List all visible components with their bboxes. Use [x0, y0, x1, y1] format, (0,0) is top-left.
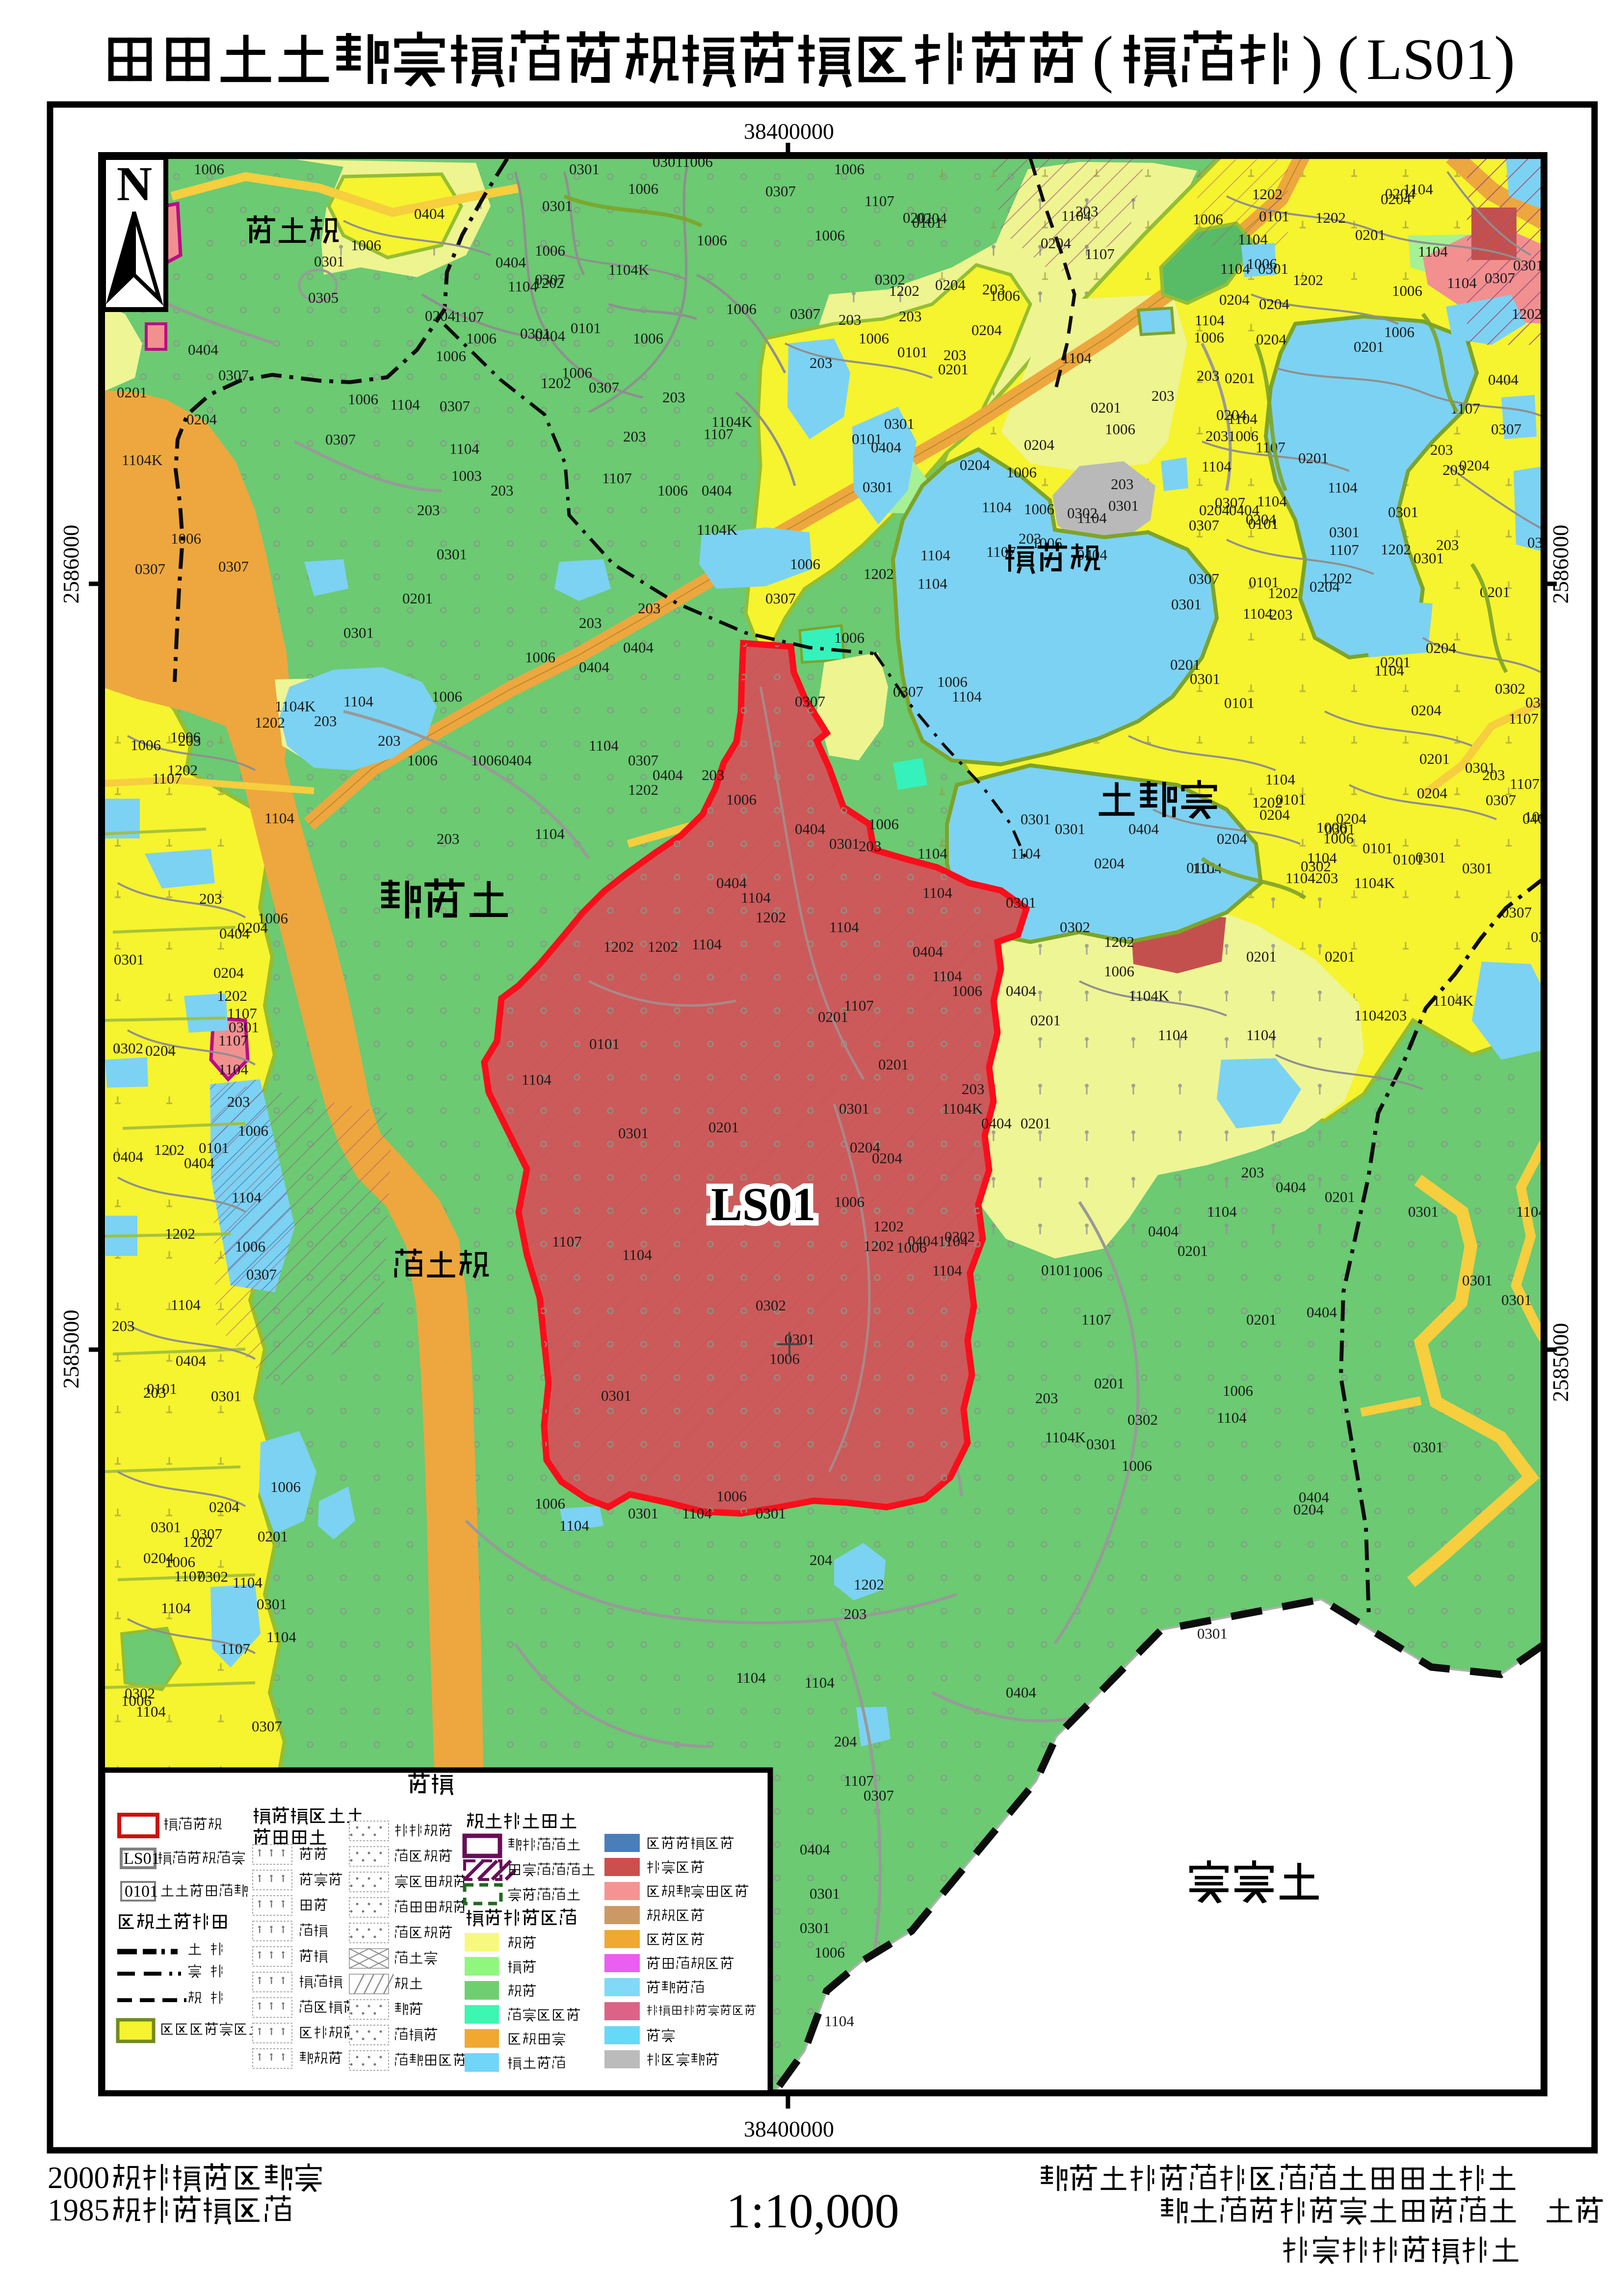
svg-text:0204: 0204	[425, 307, 456, 324]
svg-text:1006: 1006	[834, 160, 864, 178]
svg-text:1006: 1006	[814, 1944, 845, 1961]
svg-text:38400000: 38400000	[744, 119, 834, 144]
svg-text:1107: 1107	[218, 1032, 248, 1049]
svg-text:1107: 1107	[1329, 541, 1359, 558]
svg-text:): )	[1494, 24, 1515, 94]
svg-text:1006: 1006	[726, 300, 757, 317]
svg-text:0204: 0204	[237, 919, 268, 936]
svg-text:1104: 1104	[952, 688, 982, 705]
svg-text:1985: 1985	[48, 2193, 109, 2227]
svg-text:2585000: 2585000	[58, 1310, 83, 1389]
svg-text:1104: 1104	[1257, 493, 1287, 510]
svg-text:203: 203	[810, 354, 833, 371]
svg-text:0404: 0404	[623, 639, 654, 656]
svg-text:0404: 0404	[1229, 501, 1260, 519]
svg-text:1107: 1107	[152, 770, 182, 787]
svg-text:1006: 1006	[868, 815, 899, 833]
svg-text:1104: 1104	[1307, 849, 1337, 866]
svg-text:0404: 0404	[795, 820, 826, 837]
svg-text:0204: 0204	[1219, 291, 1250, 308]
svg-text:0101: 0101	[897, 343, 928, 361]
svg-text:1006: 1006	[952, 982, 982, 999]
svg-text:0404: 0404	[913, 943, 943, 960]
svg-text:0201: 0201	[1380, 653, 1411, 671]
svg-text:10060404: 10060404	[471, 752, 532, 769]
svg-text:1104: 1104	[622, 1246, 652, 1263]
svg-text:1104: 1104	[917, 575, 947, 592]
svg-text:0201: 0201	[402, 590, 433, 607]
svg-text:0301: 0301	[343, 624, 374, 641]
svg-text:0301: 0301	[800, 1919, 830, 1936]
svg-text:0307: 0307	[218, 366, 249, 384]
svg-text:0301: 0301	[1413, 1438, 1443, 1456]
svg-text:0302: 0302	[1495, 680, 1525, 697]
svg-text:1006: 1006	[535, 1495, 565, 1512]
svg-text:0301: 0301	[1462, 1272, 1492, 1289]
svg-text:1104: 1104	[1246, 1026, 1276, 1044]
svg-text:0204: 0204	[1259, 806, 1290, 823]
svg-text:204: 204	[810, 1551, 833, 1568]
svg-text:1104: 1104	[741, 889, 771, 906]
svg-text:203: 203	[417, 501, 440, 519]
svg-text:0204: 0204	[186, 411, 217, 428]
svg-text:1006: 1006	[790, 555, 820, 573]
svg-text:203: 203	[623, 428, 646, 445]
svg-text:0301: 0301	[618, 1124, 649, 1142]
svg-text:0307: 0307	[864, 1787, 894, 1804]
svg-text:0302: 0302	[113, 1040, 143, 1057]
svg-text:1202: 1202	[1315, 209, 1346, 226]
svg-text:1006: 1006	[535, 242, 565, 259]
svg-text:1104: 1104	[920, 547, 950, 564]
svg-text:1104K: 1104K	[1516, 1203, 1557, 1220]
svg-text:1202: 1202	[1512, 305, 1542, 322]
svg-text:1202: 1202	[864, 565, 894, 582]
svg-text:0301: 0301	[437, 546, 467, 563]
svg-text:1202: 1202	[628, 781, 658, 798]
svg-text:0204: 0204	[1259, 295, 1290, 313]
svg-text:1104: 1104	[1328, 479, 1358, 496]
svg-text:0307: 0307	[893, 683, 923, 700]
svg-text:0301: 0301	[1501, 1291, 1532, 1308]
svg-text:203: 203	[662, 389, 685, 406]
svg-text:1202: 1202	[541, 374, 571, 391]
svg-text:1104K: 1104K	[275, 698, 316, 715]
svg-text:0204: 0204	[213, 964, 244, 981]
svg-text:1104: 1104	[1158, 1026, 1188, 1044]
svg-text:203: 203	[1152, 387, 1175, 404]
svg-text:1202: 1202	[1104, 933, 1134, 950]
svg-text:0201: 0201	[1298, 449, 1329, 467]
svg-text:1202: 1202	[1293, 271, 1323, 288]
svg-text:0201: 0201	[1246, 948, 1277, 965]
svg-text:1104K: 1104K	[122, 451, 163, 469]
svg-text:0301: 0301	[756, 1505, 786, 1522]
svg-text:2586000: 2586000	[1548, 525, 1573, 604]
svg-text:1006: 1006	[716, 1487, 747, 1505]
svg-text:0301: 0301	[829, 835, 860, 852]
svg-text:0201: 0201	[903, 209, 933, 226]
svg-text:0302: 0302	[1067, 504, 1098, 522]
svg-text:0201: 0201	[1355, 226, 1386, 243]
svg-text:0301: 0301	[1513, 257, 1544, 274]
svg-text:1006: 1006	[1194, 329, 1224, 346]
svg-text:1006: 1006	[1223, 1382, 1253, 1399]
svg-text:0204: 0204	[1293, 1501, 1324, 1518]
svg-text:0301: 0301	[628, 1505, 658, 1522]
svg-text:1006: 1006	[1105, 420, 1135, 438]
svg-text:203: 203	[1035, 1389, 1058, 1407]
svg-text:0302: 0302	[1060, 918, 1090, 936]
svg-text:0204: 0204	[1426, 639, 1457, 656]
svg-text:1104K: 1104K	[697, 521, 738, 538]
svg-text:0301: 0301	[839, 1100, 869, 1117]
svg-text:0204: 0204	[145, 1042, 176, 1059]
svg-text:0204: 0204	[209, 1498, 240, 1515]
svg-text:203: 203	[1270, 606, 1293, 623]
svg-text:0305: 0305	[308, 289, 339, 306]
svg-text:0404: 0404	[1276, 1178, 1307, 1196]
svg-text:0201: 0201	[818, 1008, 848, 1025]
svg-text:1006: 1006	[769, 1350, 800, 1367]
svg-text:0404: 0404	[1128, 820, 1159, 837]
svg-text:0404: 0404	[188, 341, 219, 358]
svg-text:1006: 1006	[1392, 282, 1422, 299]
svg-text:0204: 0204	[1216, 406, 1247, 423]
svg-text:0301: 0301	[810, 1885, 840, 1902]
svg-text:0307: 0307	[795, 693, 825, 710]
svg-text:1006: 1006	[1122, 1457, 1152, 1474]
svg-text:1202: 1202	[1252, 185, 1283, 203]
svg-text:1006: 1006	[238, 1122, 268, 1139]
svg-text:1104: 1104	[932, 1262, 962, 1279]
svg-text:1202: 1202	[217, 987, 247, 1004]
svg-text:1104: 1104	[161, 1599, 191, 1617]
svg-text:0301: 0301	[1055, 820, 1085, 837]
svg-text:1006: 1006	[348, 391, 378, 408]
svg-text:0101: 0101	[125, 1882, 158, 1901]
svg-text:1104: 1104	[805, 1674, 835, 1691]
svg-text:0301: 0301	[1171, 596, 1202, 613]
svg-text:203: 203	[491, 482, 514, 499]
svg-text:N: N	[117, 157, 152, 211]
svg-text:1104: 1104	[1011, 845, 1041, 862]
svg-text:1104K: 1104K	[1128, 987, 1170, 1004]
svg-text:2000: 2000	[48, 2161, 109, 2195]
svg-text:0201: 0201	[1091, 399, 1121, 416]
svg-text:0307: 0307	[790, 305, 820, 322]
svg-text:1104: 1104	[266, 1628, 296, 1645]
svg-text:0204: 0204	[1459, 457, 1490, 474]
svg-text:0301: 0301	[1108, 497, 1139, 514]
svg-text:203: 203	[899, 308, 922, 325]
svg-text:1104: 1104	[1217, 1409, 1247, 1426]
svg-text:1104: 1104	[218, 1061, 248, 1078]
svg-text:0404: 0404	[1006, 982, 1037, 999]
svg-text:1104: 1104	[390, 396, 420, 413]
svg-text:203: 203	[943, 346, 967, 364]
svg-text:1104: 1104	[1265, 771, 1295, 788]
svg-text:0307: 0307	[325, 431, 356, 448]
svg-text:0204: 0204	[1041, 235, 1072, 252]
svg-text:1104: 1104	[736, 1669, 766, 1686]
svg-text:1104: 1104	[343, 693, 373, 710]
svg-text:1202: 1202	[889, 282, 919, 299]
svg-text:0301: 0301	[884, 415, 915, 432]
svg-text:204: 204	[834, 1733, 857, 1750]
svg-text:1006: 1006	[466, 330, 497, 347]
svg-text:LS01: LS01	[1366, 26, 1494, 92]
svg-text:0204: 0204	[1094, 855, 1125, 872]
svg-text:1006: 1006	[1228, 427, 1258, 444]
svg-text:0307: 0307	[252, 1718, 282, 1735]
svg-text:1202: 1202	[255, 714, 285, 731]
svg-text:203: 203	[702, 766, 725, 783]
svg-text:0201: 0201	[708, 1119, 739, 1136]
svg-text:1104: 1104	[1238, 231, 1268, 248]
svg-text:0301: 0301	[542, 197, 573, 214]
svg-text:1202: 1202	[534, 274, 564, 291]
svg-text:203: 203	[112, 1317, 135, 1334]
svg-text:0307: 0307	[440, 397, 470, 415]
svg-text:2585000: 2585000	[1548, 1323, 1573, 1402]
svg-text:0307: 0307	[589, 379, 619, 396]
svg-text:0301: 0301	[1414, 549, 1444, 567]
svg-text:1:10,000: 1:10,000	[726, 2184, 899, 2238]
svg-text:): )	[1302, 24, 1323, 94]
svg-text:0301: 0301	[601, 1387, 631, 1404]
svg-text:0101: 0101	[147, 1380, 177, 1397]
svg-text:0307: 0307	[1485, 269, 1515, 287]
svg-text:1104: 1104	[1207, 1203, 1237, 1220]
svg-text:1107: 1107	[220, 1640, 250, 1657]
svg-text:1006: 1006	[896, 1239, 927, 1256]
svg-text:0204: 0204	[1381, 190, 1412, 208]
svg-text:1006: 1006	[436, 347, 466, 365]
svg-text:1104: 1104	[1418, 243, 1448, 260]
svg-text:0301: 0301	[211, 1387, 241, 1405]
svg-text:0301: 0301	[257, 1595, 287, 1613]
svg-text:1006: 1006	[351, 236, 381, 254]
svg-text:0301: 0301	[1190, 670, 1220, 687]
svg-text:1003: 1003	[451, 467, 482, 484]
svg-text:0101: 0101	[1259, 208, 1289, 225]
svg-text:1104: 1104	[559, 1517, 589, 1534]
svg-text:1107: 1107	[602, 470, 632, 487]
svg-text:0301: 0301	[1086, 1435, 1117, 1453]
svg-text:1006: 1006	[1384, 323, 1414, 340]
svg-text:1107: 1107	[1085, 245, 1115, 262]
svg-text:0301: 0301	[569, 160, 600, 178]
svg-text:1104: 1104	[1220, 260, 1250, 277]
svg-text:1104: 1104	[1062, 349, 1092, 366]
svg-text:1202: 1202	[165, 1225, 195, 1242]
svg-text:0204: 0204	[1417, 784, 1448, 802]
svg-text:203: 203	[982, 281, 1005, 298]
svg-text:1104: 1104	[589, 737, 619, 754]
svg-text:1202: 1202	[854, 1576, 884, 1593]
svg-text:1104K: 1104K	[608, 261, 650, 278]
svg-text:1104: 1104	[1243, 605, 1273, 622]
svg-text:1006: 1006	[628, 180, 658, 197]
svg-text:0301: 0301	[1006, 894, 1036, 911]
svg-text:1006: 1006	[1006, 464, 1037, 481]
svg-text:1006: 1006	[1247, 255, 1277, 272]
svg-text:0201: 0201	[1225, 369, 1255, 387]
svg-text:1006: 1006	[633, 330, 663, 347]
svg-text:203: 203	[1111, 475, 1134, 493]
svg-text:1006: 1006	[235, 1238, 265, 1255]
svg-text:1107: 1107	[1509, 710, 1539, 727]
svg-text:0307: 0307	[1189, 570, 1219, 587]
svg-text:1104: 1104	[917, 845, 947, 862]
svg-text:1107: 1107	[1081, 1311, 1111, 1328]
svg-text:1006: 1006	[1072, 1263, 1102, 1280]
svg-text:1202: 1202	[183, 1533, 213, 1550]
svg-text:0204: 0204	[1336, 810, 1367, 827]
svg-text:1202: 1202	[154, 1141, 184, 1158]
svg-text:1006: 1006	[171, 530, 201, 547]
svg-text:203: 203	[1197, 367, 1220, 384]
svg-text:1104K: 1104K	[1045, 1429, 1086, 1446]
svg-text:0204: 0204	[935, 276, 966, 293]
svg-text:1202: 1202	[1322, 570, 1352, 587]
svg-text:0404: 0404	[113, 1148, 144, 1165]
svg-text:203: 203	[1075, 203, 1099, 220]
svg-text:1104K: 1104K	[942, 1100, 983, 1117]
svg-text:1006: 1006	[697, 232, 727, 249]
svg-text:0204: 0204	[1256, 331, 1287, 348]
svg-text:0302: 0302	[756, 1297, 786, 1314]
svg-text:0307: 0307	[218, 558, 249, 575]
svg-text:0101: 0101	[571, 319, 601, 337]
svg-text:0204: 0204	[850, 1139, 881, 1156]
svg-text:1104: 1104	[1447, 274, 1477, 291]
svg-text:1107: 1107	[864, 192, 894, 209]
svg-text:1202: 1202	[1381, 541, 1411, 558]
svg-text:0101: 0101	[1041, 1261, 1072, 1278]
svg-text:0101: 0101	[852, 430, 882, 447]
svg-text:203: 203	[844, 1605, 867, 1622]
svg-text:0404: 0404	[1488, 371, 1519, 388]
svg-text:1104: 1104	[692, 936, 722, 953]
svg-text:1006: 1006	[121, 1692, 152, 1709]
svg-text:0201: 0201	[1354, 338, 1384, 355]
svg-text:0201: 0201	[1021, 1115, 1051, 1132]
svg-text:0101: 0101	[1393, 851, 1423, 868]
svg-text:0201: 0201	[1246, 1311, 1277, 1328]
svg-text:1104: 1104	[449, 440, 479, 457]
svg-text:0404: 0404	[496, 254, 526, 271]
svg-text:0404: 0404	[1307, 1304, 1337, 1321]
svg-text:0404: 0404	[981, 1115, 1012, 1132]
svg-text:203: 203	[314, 712, 337, 730]
svg-text:1202: 1202	[1268, 584, 1298, 601]
svg-text:0204: 0204	[960, 456, 991, 473]
svg-text:203: 203	[1430, 441, 1453, 458]
svg-text:0204: 0204	[971, 321, 1002, 339]
svg-text:1104: 1104	[233, 1574, 262, 1591]
svg-text:0404: 0404	[414, 205, 445, 222]
svg-text:1006: 1006	[726, 791, 757, 808]
svg-text:1104: 1104	[171, 1296, 201, 1313]
svg-text:1107: 1107	[454, 308, 484, 325]
svg-text:1104: 1104	[522, 1071, 551, 1088]
svg-text:1006: 1006	[1193, 210, 1223, 228]
svg-text:0201: 0201	[1325, 948, 1355, 965]
svg-text:0307: 0307	[1189, 517, 1219, 534]
svg-text:0201: 0201	[1178, 1242, 1208, 1259]
svg-text:203: 203	[1205, 427, 1229, 444]
svg-text:1006: 1006	[814, 227, 845, 244]
svg-text:0404: 0404	[579, 658, 610, 676]
svg-text:1104203: 1104203	[1354, 1007, 1407, 1024]
svg-text:1202: 1202	[864, 1237, 894, 1254]
svg-text:1202: 1202	[603, 938, 634, 955]
svg-text:1104: 1104	[1202, 458, 1231, 475]
svg-text:1202: 1202	[756, 909, 786, 926]
svg-text:0404: 0404	[702, 482, 733, 499]
svg-text:1006: 1006	[525, 649, 555, 666]
svg-text:0201: 0201	[1094, 1375, 1125, 1392]
svg-text:0404: 0404	[535, 327, 566, 344]
svg-text:0201: 0201	[1325, 1188, 1355, 1205]
svg-text:0404: 0404	[176, 1352, 207, 1369]
svg-text:0307: 0307	[765, 590, 796, 607]
svg-text:203: 203	[378, 732, 401, 749]
svg-text:0204: 0204	[1411, 702, 1442, 719]
svg-text:0301: 0301	[1408, 1203, 1439, 1220]
svg-text:1006: 1006	[194, 160, 224, 178]
svg-text:2586000: 2586000	[58, 525, 83, 604]
svg-text:1006: 1006	[834, 1193, 864, 1210]
svg-text:LS01: LS01	[711, 1178, 815, 1230]
svg-text:0301: 0301	[114, 951, 144, 968]
svg-text:0301: 0301	[863, 478, 893, 496]
svg-text:1104: 1104	[264, 809, 294, 827]
svg-text:1107: 1107	[1256, 439, 1285, 456]
svg-text:0201: 0201	[117, 384, 147, 401]
svg-text:1107: 1107	[704, 425, 733, 443]
svg-text:1104: 1104	[824, 2012, 854, 2030]
svg-text:0201: 0201	[878, 1056, 909, 1073]
svg-text:0404: 0404	[184, 1154, 215, 1172]
svg-text:1104K: 1104K	[1433, 992, 1474, 1009]
svg-text:1006: 1006	[1104, 963, 1134, 980]
svg-text:0204: 0204	[1024, 436, 1055, 453]
svg-text:0301: 0301	[1197, 1625, 1228, 1642]
svg-text:1104: 1104	[535, 825, 565, 842]
svg-text:1006: 1006	[131, 736, 161, 754]
svg-text:0301: 0301	[1021, 810, 1051, 828]
svg-text:1104: 1104	[1195, 312, 1225, 329]
svg-text:1107: 1107	[552, 1233, 582, 1250]
svg-text:1202: 1202	[873, 1218, 904, 1235]
svg-text:203: 203	[227, 1093, 250, 1110]
svg-text:1104K: 1104K	[1354, 874, 1395, 891]
svg-text:1107: 1107	[844, 997, 874, 1014]
svg-text:203: 203	[638, 600, 661, 617]
svg-text:1107: 1107	[174, 1567, 204, 1585]
svg-text:0301: 0301	[314, 253, 344, 270]
svg-text:1006: 1006	[1524, 808, 1555, 825]
svg-text:0302: 0302	[1127, 1411, 1158, 1428]
svg-text:1104K: 1104K	[1545, 1227, 1587, 1245]
svg-text:0101: 0101	[1224, 694, 1255, 711]
svg-text:1107: 1107	[1510, 775, 1540, 792]
svg-text:0307: 0307	[1501, 904, 1532, 921]
svg-text:1104: 1104	[982, 498, 1012, 516]
